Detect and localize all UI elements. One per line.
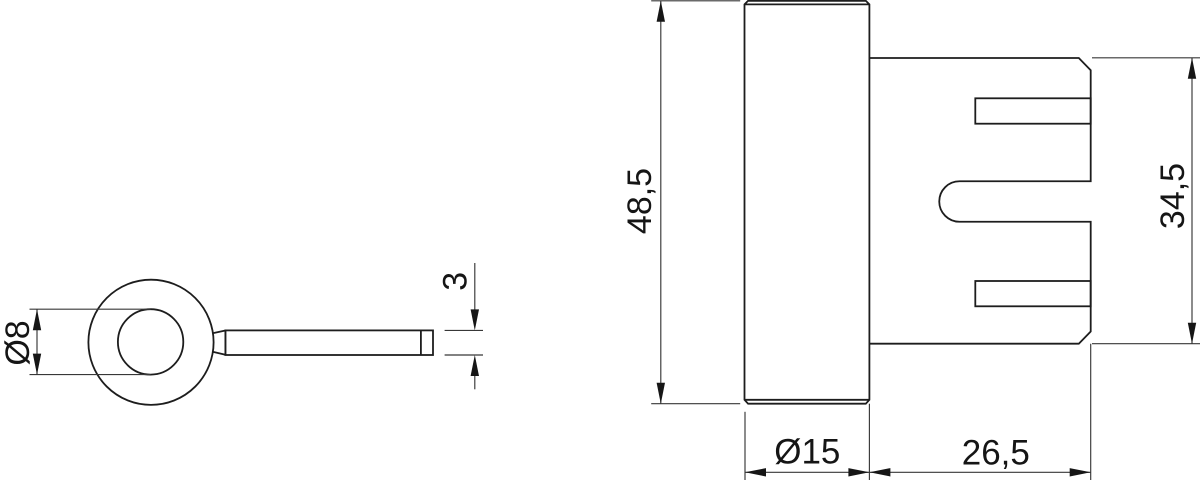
svg-text:48,5: 48,5 <box>621 168 659 234</box>
svg-text:3: 3 <box>437 272 475 291</box>
svg-text:Ø8: Ø8 <box>0 320 37 365</box>
svg-text:34,5: 34,5 <box>1154 163 1192 229</box>
svg-text:26,5: 26,5 <box>962 434 1030 473</box>
svg-text:Ø15: Ø15 <box>774 433 840 472</box>
